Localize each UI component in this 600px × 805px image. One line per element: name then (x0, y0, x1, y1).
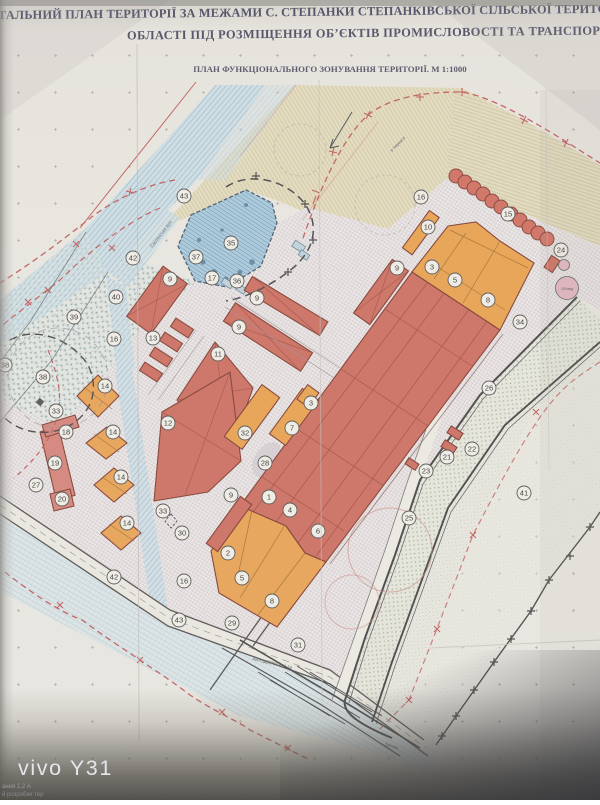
svg-text:ання 1,2 А: ання 1,2 А (2, 784, 31, 790)
svg-text:й розробки тер: й розробки тер (2, 791, 44, 798)
svg-text:vivo Y31: vivo Y31 (18, 756, 113, 780)
